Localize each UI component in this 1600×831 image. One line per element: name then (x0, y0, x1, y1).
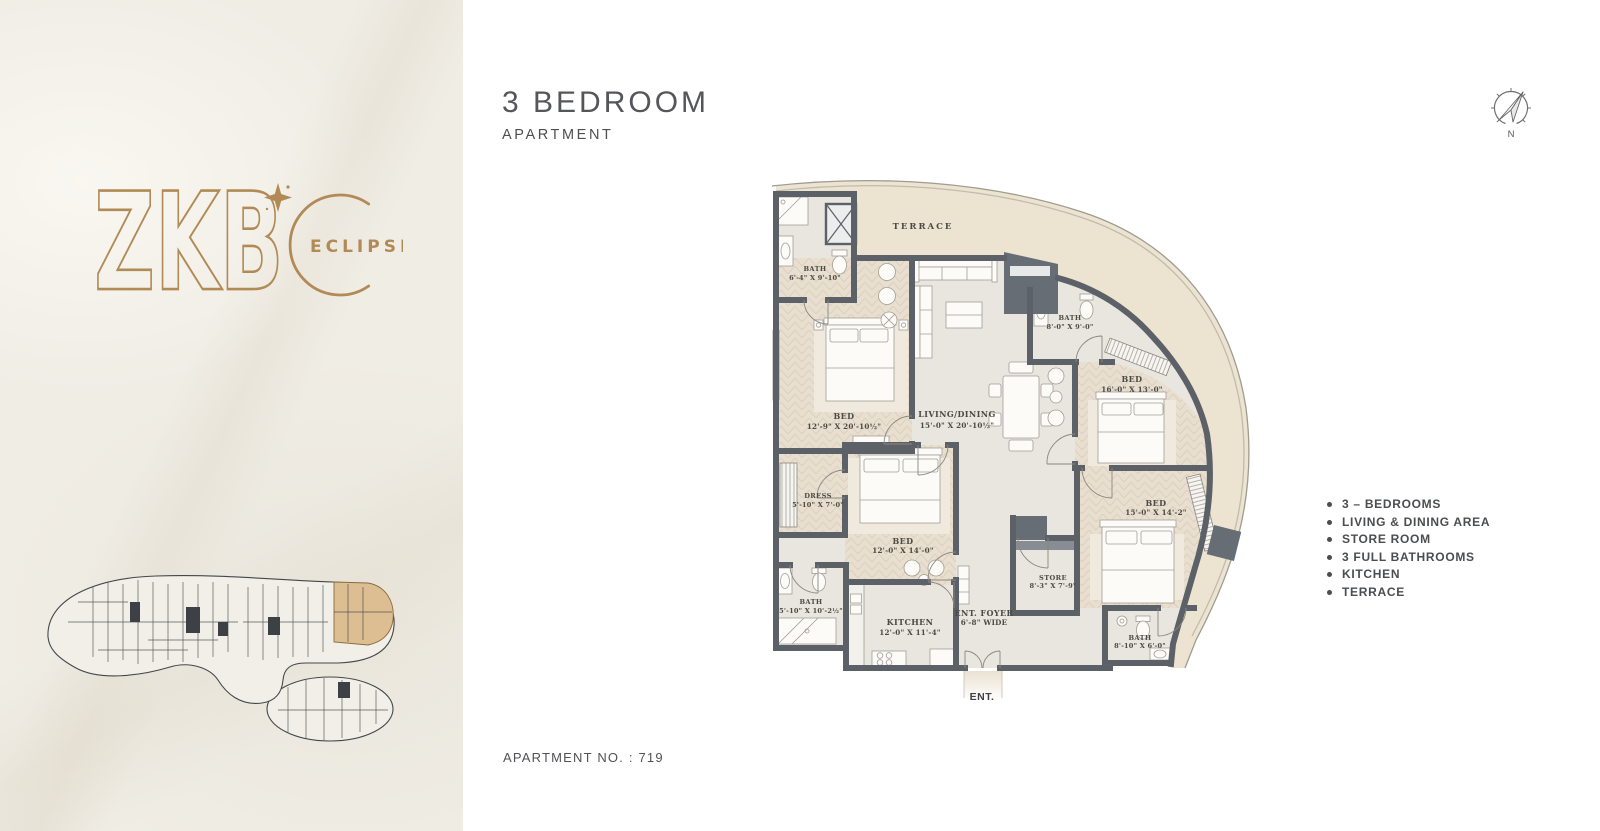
bullet-icon (1327, 590, 1332, 595)
title-block: 3 BEDROOM APARTMENT (502, 86, 709, 143)
feature-item: STORE ROOM (1327, 533, 1490, 546)
dress-wardrobe (780, 463, 797, 527)
store-shelf (1016, 541, 1074, 550)
room-label-bed-right-bottom: BED (1146, 498, 1167, 508)
svg-text:16'-0" X 13'-0": 16'-0" X 13'-0" (1101, 385, 1162, 394)
feature-item: 3 – BEDROOMS (1327, 498, 1490, 511)
apartment-number: APARTMENT NO. : 719 (503, 750, 664, 765)
svg-text:15'-0" X 14'-2": 15'-0" X 14'-2" (1125, 508, 1186, 517)
room-label-bed-right-top: BED (1122, 374, 1143, 384)
logo-zkb-text: ZKB (94, 183, 283, 321)
room-label-bath-top: BATH (803, 265, 826, 273)
room-label-bath-ensuite: BATH (1128, 634, 1151, 642)
feature-item: KITCHEN (1327, 568, 1490, 581)
svg-text:8'-0" X 9'-0": 8'-0" X 9'-0" (1046, 323, 1093, 331)
bed-right-top-furniture (1096, 392, 1166, 463)
feature-item: LIVING & DINING AREA (1327, 516, 1490, 529)
room-label-bath-right: BATH (1058, 314, 1081, 322)
room-label-terrace: TERRACE (893, 222, 954, 232)
compass-icon: N (1483, 78, 1539, 140)
room-label-dress: DRESS (804, 492, 832, 500)
room-label-bed-master: BED (834, 411, 855, 421)
svg-text:8'-10" X 6'-0": 8'-10" X 6'-0" (1114, 642, 1166, 650)
svg-text:5'-10" X 10'-2½": 5'-10" X 10'-2½" (779, 607, 843, 615)
keyplan (38, 562, 413, 747)
room-label-store: STORE (1039, 574, 1067, 582)
logo-eclipse-text: ECLIPSE (310, 237, 403, 257)
svg-text:6'-4" X 9'-10": 6'-4" X 9'-10" (789, 274, 841, 282)
features-list: 3 – BEDROOMS LIVING & DINING AREA STORE … (1327, 498, 1490, 603)
svg-text:12'-0" X 11'-4": 12'-0" X 11'-4" (879, 628, 940, 637)
keyplan-highlighted-unit (334, 582, 393, 645)
room-label-bath-left: BATH (799, 598, 822, 606)
page-subtitle: APARTMENT (502, 127, 709, 143)
svg-text:8'-3" X 7'-9": 8'-3" X 7'-9" (1029, 582, 1076, 590)
svg-text:6'-8" WIDE: 6'-8" WIDE (961, 618, 1008, 627)
bullet-icon (1327, 520, 1332, 525)
foyer-console (958, 566, 969, 604)
left-panel: ZKB ECLIPSE (0, 0, 463, 831)
room-label-kitchen: KITCHEN (887, 617, 934, 627)
entrance-label: ENT. (970, 691, 995, 703)
room-label-foyer: ENT. FOYER (954, 608, 1013, 618)
feature-item: 3 FULL BATHROOMS (1327, 551, 1490, 564)
keyplan-lower-lobe (267, 677, 393, 741)
svg-text:15'-0" X 20'-10½": 15'-0" X 20'-10½" (920, 421, 994, 430)
page-title: 3 BEDROOM (502, 86, 709, 120)
bullet-icon (1327, 502, 1332, 507)
svg-text:12'-9" X 20'-10½": 12'-9" X 20'-10½" (807, 422, 881, 431)
feature-item: TERRACE (1327, 586, 1490, 599)
room-label-living: LIVING/DINING (918, 409, 995, 419)
svg-text:5'-10" X 7'-0": 5'-10" X 7'-0" (792, 501, 844, 509)
svg-text:12'-0" X 14'-0": 12'-0" X 14'-0" (872, 546, 933, 555)
bed-right-bottom-furniture (1100, 520, 1176, 603)
brand-logo: ZKB ECLIPSE (88, 183, 403, 323)
compass-north-label: N (1508, 129, 1515, 140)
floor-plan: TERRACE BATH 6'-4" X 9'-10" BED 12'-9" X… (760, 170, 1280, 720)
bullet-icon (1327, 572, 1332, 577)
bullet-icon (1327, 537, 1332, 542)
room-label-bed-middle: BED (893, 536, 914, 546)
bullet-icon (1327, 555, 1332, 560)
